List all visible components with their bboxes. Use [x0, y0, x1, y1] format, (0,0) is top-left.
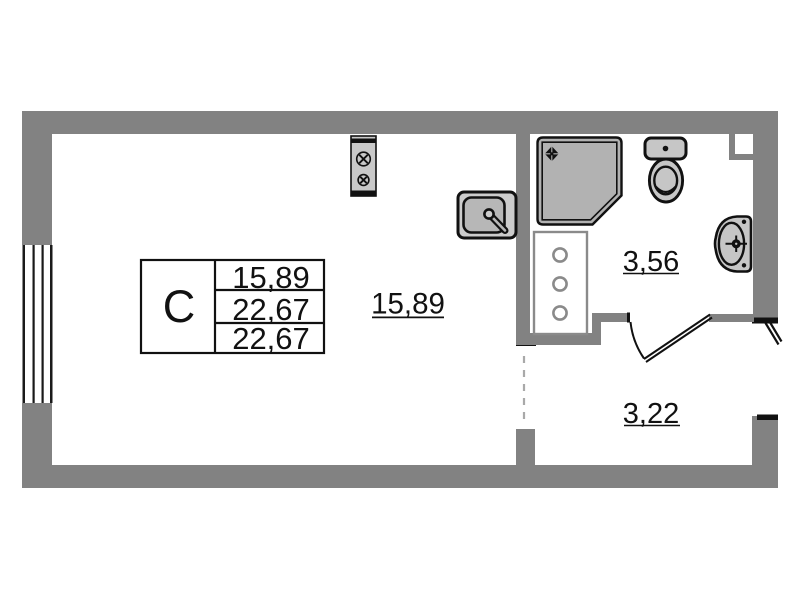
svg-text:15,89: 15,89	[371, 288, 445, 321]
svg-text:15,89: 15,89	[232, 260, 310, 295]
svg-text:22,67: 22,67	[232, 321, 310, 356]
svg-text:С: С	[163, 281, 196, 332]
